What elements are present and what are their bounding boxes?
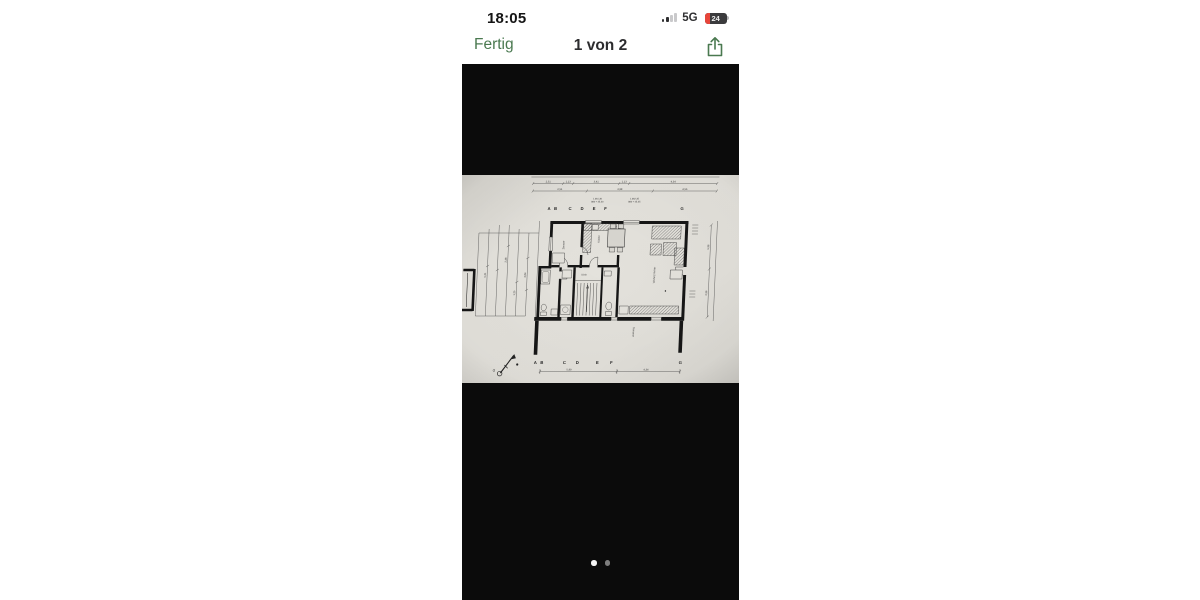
- cellular-signal-icon: [662, 13, 678, 23]
- document-viewer[interactable]: 2,51 1,13 3,41 1,13 4,34 2,51 3,98 4,56 …: [462, 64, 739, 600]
- floorplan-drawing: 2,51 1,13 3,41 1,13 4,34 2,51 3,98 4,56 …: [462, 175, 739, 383]
- status-bar: 18:05 5G 24: [462, 0, 739, 30]
- status-time: 18:05: [487, 10, 526, 27]
- battery-percent-label: 24: [705, 13, 727, 24]
- status-icons: 5G 24: [662, 12, 729, 24]
- phone-screen: 18:05 5G 24 Fertig 1 von 2: [462, 0, 739, 600]
- photo-vignette: [462, 175, 739, 383]
- share-icon: [705, 35, 725, 59]
- nav-bar: Fertig 1 von 2: [462, 30, 739, 64]
- battery-icon: 24: [705, 13, 729, 24]
- floorplan-image[interactable]: 2,51 1,13 3,41 1,13 4,34 2,51 3,98 4,56 …: [462, 175, 739, 383]
- page-background: 18:05 5G 24 Fertig 1 von 2: [0, 0, 1200, 600]
- page-dot-2[interactable]: [605, 560, 611, 566]
- share-button[interactable]: [703, 33, 727, 64]
- page-indicator: [462, 560, 739, 566]
- page-title: 1 von 2: [462, 37, 739, 55]
- network-type-label: 5G: [682, 12, 697, 24]
- page-dot-1[interactable]: [591, 560, 597, 566]
- battery-cap: [727, 16, 729, 20]
